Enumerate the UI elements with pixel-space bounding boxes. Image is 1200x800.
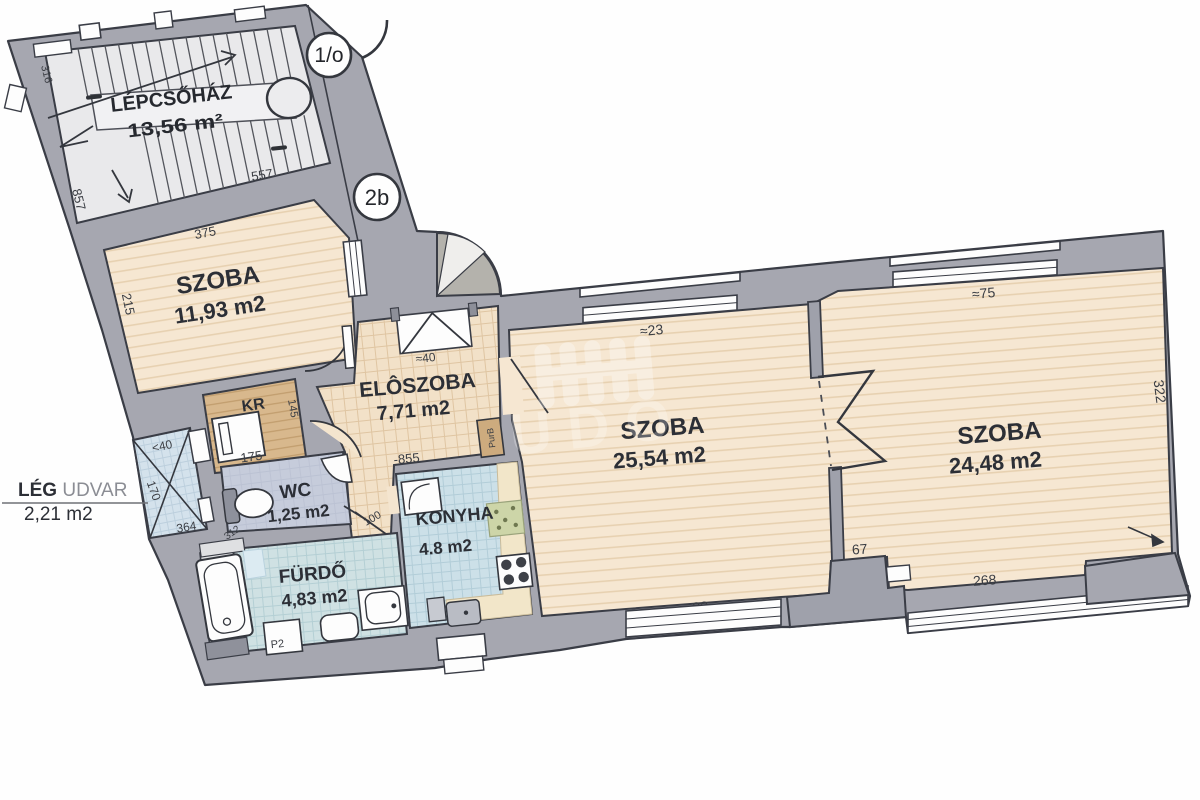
svg-text:2b: 2b: [365, 185, 389, 210]
svg-text:P2: P2: [270, 638, 285, 651]
svg-text:322: 322: [1151, 379, 1170, 404]
svg-text:WC: WC: [279, 479, 313, 503]
svg-text:KR: KR: [241, 395, 267, 415]
svg-text:268: 268: [972, 571, 997, 589]
svg-text:≈40: ≈40: [415, 350, 437, 366]
svg-text:1/o: 1/o: [314, 44, 343, 67]
svg-text:≈75: ≈75: [971, 284, 996, 302]
svg-text:LÉG UDVAR: LÉG UDVAR: [18, 479, 127, 501]
svg-text:67: 67: [851, 540, 868, 557]
svg-text:-855: -855: [393, 450, 420, 467]
svg-text:2,21 m2: 2,21 m2: [24, 504, 93, 525]
